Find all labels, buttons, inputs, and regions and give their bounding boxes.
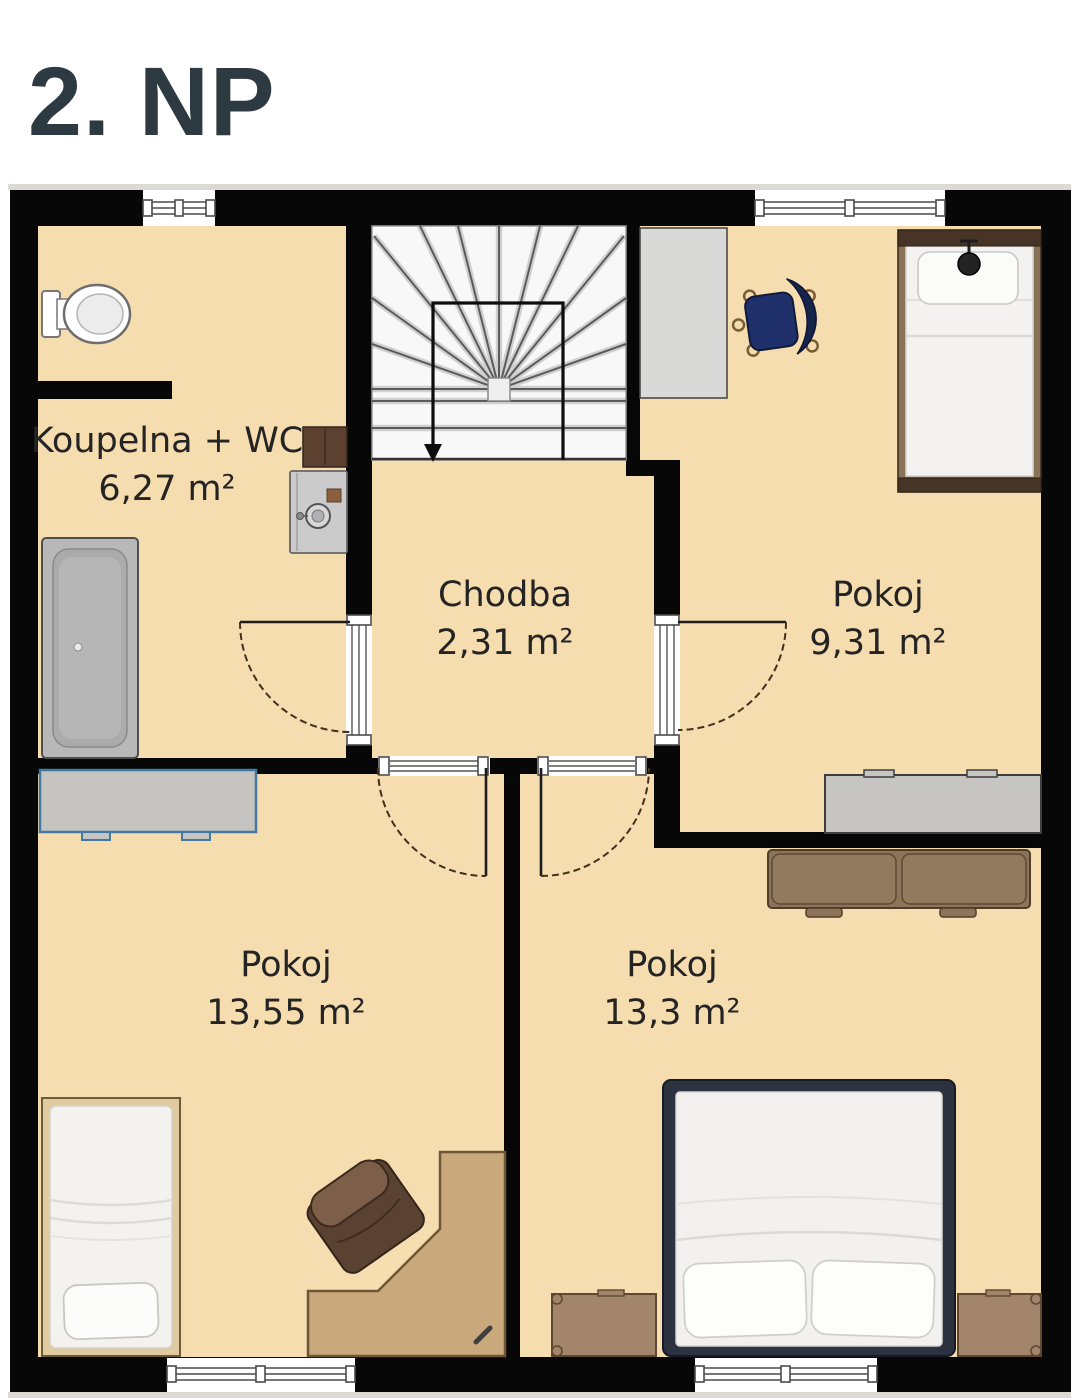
window-bedroom-right: [695, 1358, 877, 1392]
staircase: [372, 226, 626, 462]
door-frame-bathroom: [346, 615, 372, 745]
window-bathroom: [143, 190, 215, 226]
sofa: [768, 850, 1030, 917]
nightstand-left: [552, 1290, 656, 1356]
bathtub: [42, 538, 138, 758]
bathroom-cabinet: [303, 427, 347, 467]
floorplan-canvas: 2. NP: [0, 0, 1081, 1400]
label-bedroom-top-name: Pokoj: [832, 575, 923, 615]
exterior-trim-top: [8, 184, 1071, 190]
single-bed-left: [42, 1098, 180, 1356]
label-bathroom-name: Koupelna + WC: [31, 421, 304, 461]
label-hallway-name: Chodba: [438, 575, 572, 615]
dresser-blue: [40, 770, 256, 840]
floorplan-svg: Koupelna + WC 6,27 m² Chodba 2,31 m² Pok…: [0, 0, 1081, 1400]
toilet: [42, 285, 130, 343]
label-hallway-area: 2,31 m²: [436, 623, 573, 663]
washing-machine: [290, 471, 347, 553]
label-bedroom-right-area: 13,3 m²: [603, 993, 740, 1033]
door-frame-bedroom-right: [537, 756, 647, 776]
label-bedroom-left-name: Pokoj: [240, 945, 331, 985]
window-bedroom-left: [167, 1358, 355, 1392]
label-bedroom-left-area: 13,55 m²: [206, 993, 365, 1033]
label-bedroom-top-area: 9,31 m²: [809, 623, 946, 663]
door-frame-bedroom-left: [378, 756, 490, 776]
double-bed: [663, 1080, 955, 1356]
window-bedroom-top: [755, 190, 945, 226]
exterior-trim-bottom: [8, 1392, 1071, 1398]
door-frame-bedroom-top: [654, 615, 680, 745]
nightstand-right: [958, 1290, 1041, 1356]
label-bedroom-right-name: Pokoj: [626, 945, 717, 985]
dresser-concrete: [825, 770, 1041, 833]
label-bathroom-area: 6,27 m²: [98, 469, 235, 509]
single-bed-top: [898, 230, 1041, 492]
stair-newel: [488, 378, 510, 401]
wardrobe: [640, 228, 727, 398]
